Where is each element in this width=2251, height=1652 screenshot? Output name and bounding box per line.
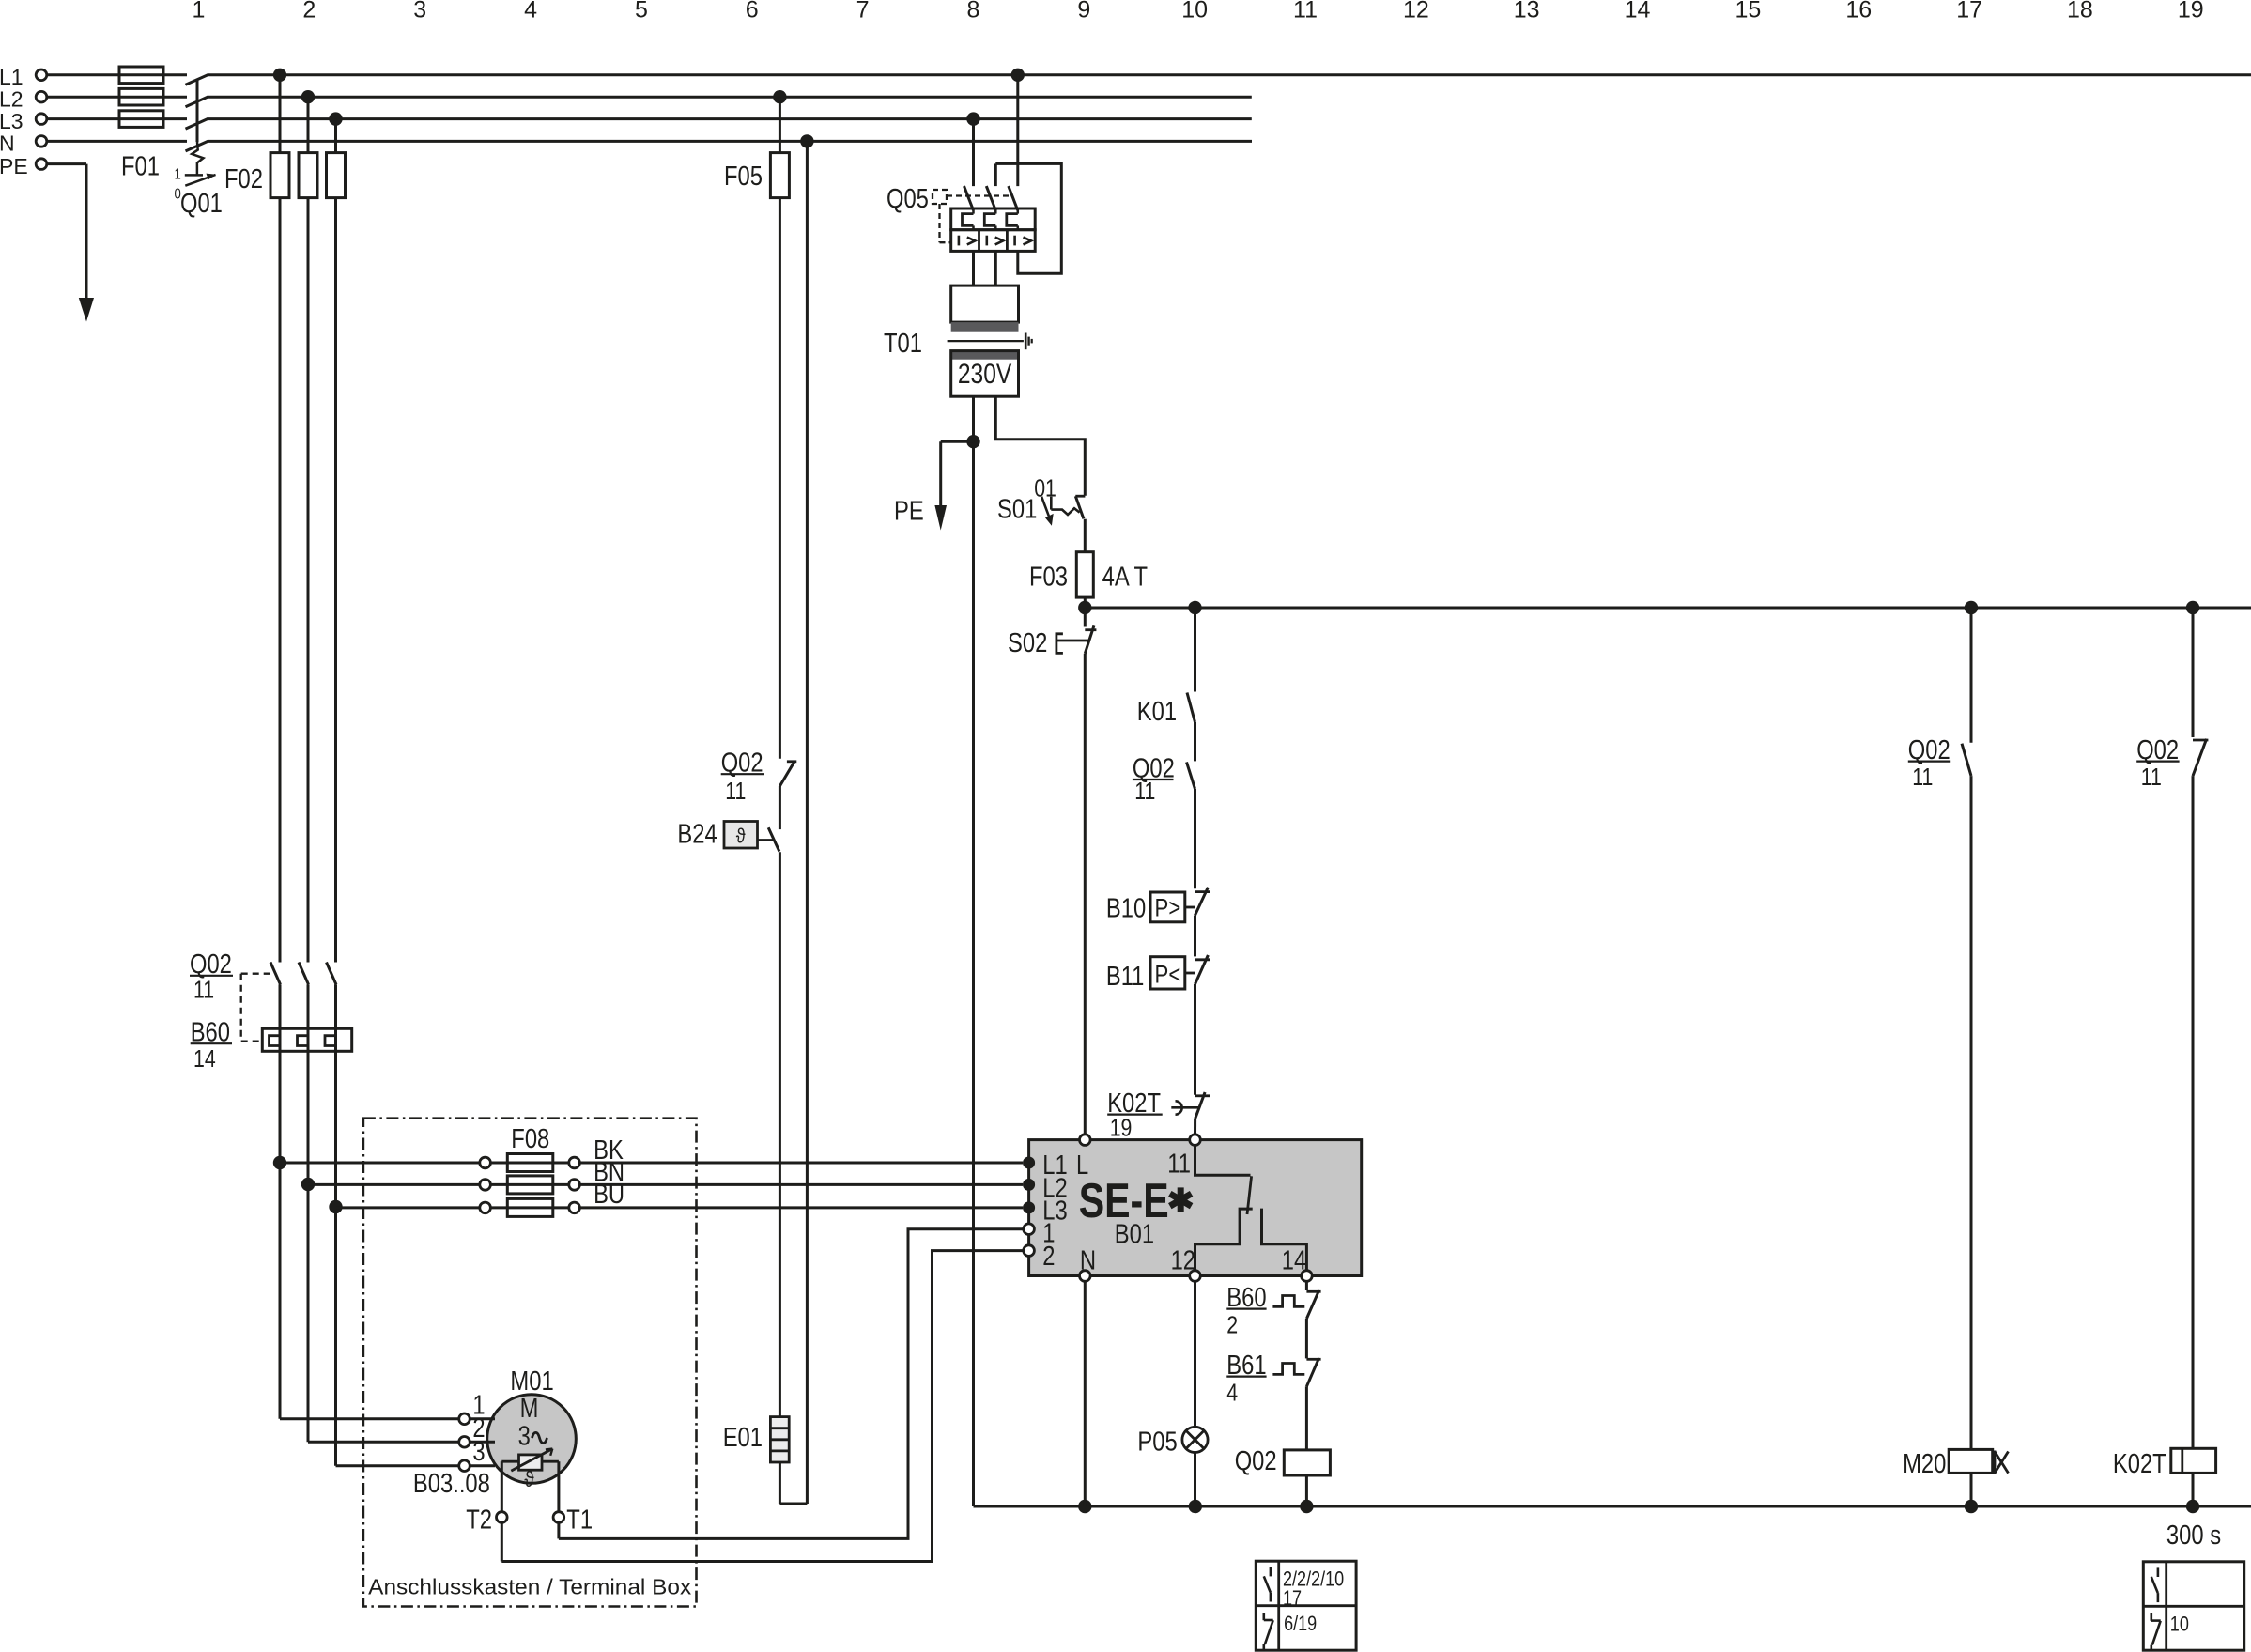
svg-text:11: 11 bbox=[725, 777, 746, 805]
svg-text:5: 5 bbox=[635, 0, 648, 23]
svg-text:L2: L2 bbox=[0, 87, 23, 112]
svg-text:ϑ: ϑ bbox=[736, 825, 746, 848]
svg-text:1: 1 bbox=[193, 0, 206, 23]
svg-text:PE: PE bbox=[894, 497, 924, 527]
svg-text:10: 10 bbox=[2170, 1612, 2189, 1635]
svg-text:15: 15 bbox=[1735, 0, 1761, 23]
svg-text:14: 14 bbox=[1282, 1246, 1306, 1276]
svg-text:K01: K01 bbox=[1137, 697, 1177, 727]
svg-text:M20: M20 bbox=[1903, 1449, 1946, 1479]
svg-text:230V: 230V bbox=[958, 359, 1012, 390]
svg-text:11: 11 bbox=[1293, 0, 1318, 23]
svg-text:Q05: Q05 bbox=[887, 184, 929, 214]
svg-text:3: 3 bbox=[472, 1437, 485, 1467]
svg-text:11: 11 bbox=[1912, 763, 1933, 791]
svg-text:P>: P> bbox=[1155, 894, 1181, 922]
svg-text:18: 18 bbox=[2067, 0, 2093, 23]
svg-text:4: 4 bbox=[1226, 1378, 1238, 1406]
svg-text:T1: T1 bbox=[566, 1505, 593, 1536]
svg-text:T2: T2 bbox=[466, 1505, 492, 1536]
svg-text:19: 19 bbox=[2178, 0, 2204, 23]
svg-text:E01: E01 bbox=[723, 1423, 763, 1453]
svg-text:01: 01 bbox=[1034, 473, 1056, 502]
svg-text:B01: B01 bbox=[1115, 1220, 1154, 1250]
svg-text:9: 9 bbox=[1077, 0, 1090, 23]
svg-text:6/19: 6/19 bbox=[1284, 1612, 1317, 1635]
svg-text:N: N bbox=[0, 131, 15, 156]
svg-text:L1: L1 bbox=[0, 65, 23, 89]
svg-text:2: 2 bbox=[1042, 1242, 1055, 1272]
svg-text:F05: F05 bbox=[724, 162, 763, 192]
svg-text:M01: M01 bbox=[510, 1366, 553, 1397]
svg-text:300 s: 300 s bbox=[2166, 1521, 2221, 1551]
svg-text:B10: B10 bbox=[1106, 894, 1146, 924]
svg-text:Q02: Q02 bbox=[1235, 1446, 1277, 1476]
svg-text:17: 17 bbox=[1956, 0, 1982, 23]
svg-text:14: 14 bbox=[193, 1044, 216, 1073]
svg-text:S02: S02 bbox=[1008, 628, 1047, 658]
svg-text:BU: BU bbox=[594, 1180, 624, 1210]
svg-text:B24: B24 bbox=[677, 820, 717, 850]
svg-text:4: 4 bbox=[524, 0, 537, 23]
svg-text:10: 10 bbox=[1181, 0, 1208, 23]
svg-text:3: 3 bbox=[518, 1422, 531, 1452]
svg-text:11: 11 bbox=[1134, 777, 1155, 805]
svg-text:6: 6 bbox=[746, 0, 759, 23]
svg-text:11: 11 bbox=[193, 976, 214, 1004]
svg-text:B11: B11 bbox=[1106, 962, 1145, 992]
svg-text:B03..08: B03..08 bbox=[413, 1469, 490, 1499]
svg-text:11: 11 bbox=[2141, 763, 2162, 791]
svg-text:ϑ: ϑ bbox=[524, 1467, 534, 1491]
svg-text:PE: PE bbox=[0, 154, 28, 178]
svg-text:12: 12 bbox=[1403, 0, 1429, 23]
svg-text:4A T: 4A T bbox=[1102, 563, 1149, 593]
svg-text:K02T: K02T bbox=[2113, 1449, 2166, 1479]
svg-text:T01: T01 bbox=[884, 329, 922, 359]
svg-text:P05: P05 bbox=[1137, 1428, 1177, 1458]
svg-text:11: 11 bbox=[1167, 1150, 1191, 1180]
svg-text:2: 2 bbox=[302, 0, 316, 23]
svg-text:3: 3 bbox=[413, 0, 426, 23]
svg-text:N: N bbox=[1080, 1246, 1096, 1276]
svg-text:19: 19 bbox=[1110, 1113, 1133, 1141]
svg-text:2: 2 bbox=[1226, 1310, 1238, 1338]
svg-text:M: M bbox=[520, 1394, 539, 1424]
svg-text:Q01: Q01 bbox=[180, 189, 223, 219]
svg-text:14: 14 bbox=[1625, 0, 1651, 23]
svg-text:12: 12 bbox=[1171, 1246, 1195, 1276]
svg-text:F01: F01 bbox=[121, 152, 160, 182]
svg-text:S01: S01 bbox=[997, 494, 1037, 524]
svg-text:P<: P< bbox=[1155, 960, 1181, 988]
svg-text:F02: F02 bbox=[224, 164, 263, 194]
svg-text:L3: L3 bbox=[0, 109, 23, 133]
svg-text:7: 7 bbox=[856, 0, 870, 23]
svg-text:F08: F08 bbox=[511, 1124, 549, 1154]
svg-text:16: 16 bbox=[1845, 0, 1872, 23]
svg-text:17: 17 bbox=[1283, 1586, 1302, 1610]
svg-text:1: 1 bbox=[175, 167, 181, 183]
svg-text:F03: F03 bbox=[1029, 563, 1068, 593]
svg-text:Anschlusskasten / Terminal Box: Anschlusskasten / Terminal Box bbox=[368, 1575, 691, 1599]
svg-text:13: 13 bbox=[1514, 0, 1540, 23]
svg-text:8: 8 bbox=[966, 0, 979, 23]
